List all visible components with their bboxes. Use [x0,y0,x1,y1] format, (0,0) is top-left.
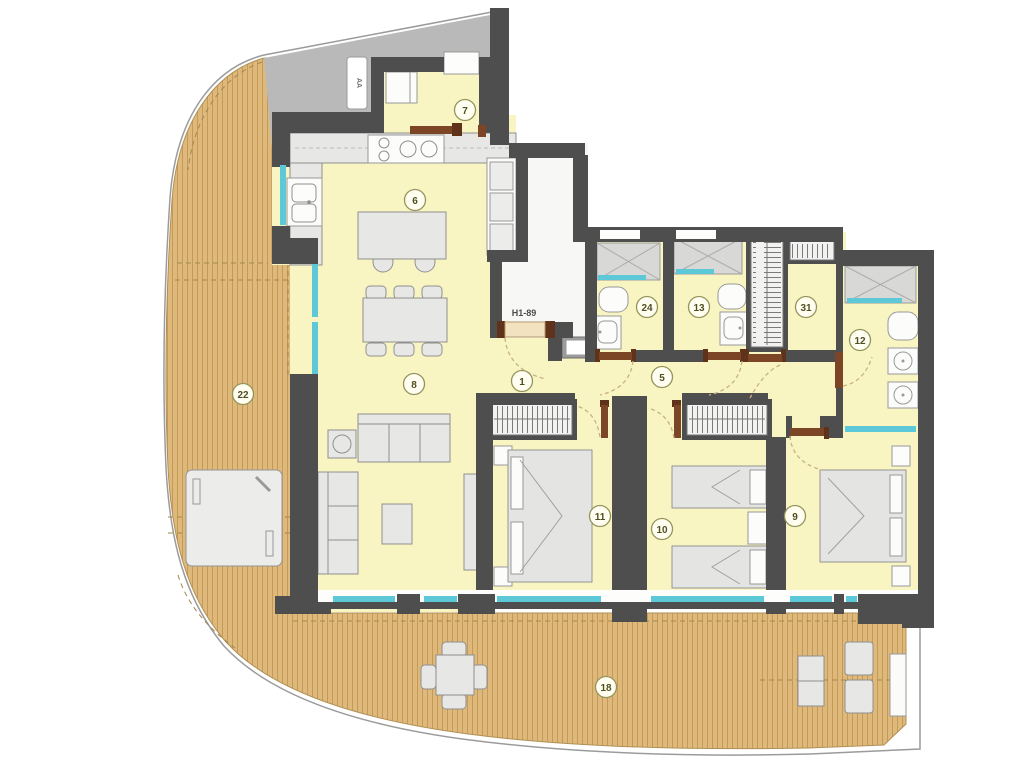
nightstand [892,446,910,466]
room-label-1: 1 [512,371,533,392]
room-label-9: 9 [785,506,806,527]
dining-chair [394,343,414,356]
room-label-12: 12 [850,330,871,351]
svg-text:12: 12 [854,336,866,347]
daybed [186,470,282,566]
coffee-table [382,504,412,544]
room-label-31: 31 [796,297,817,318]
single-bed [672,466,770,508]
kitchen-sink [287,178,322,226]
room-label-18: 18 [596,677,617,698]
washbasin [888,382,918,408]
dining-chair [394,286,414,299]
single-bed [672,546,770,588]
svg-text:8: 8 [411,380,417,391]
wardrobe-bedroom-11 [487,399,577,440]
room-label-5: 5 [652,367,673,388]
dining-table [363,298,447,342]
toilet [599,287,628,312]
wardrobe-column [746,230,788,352]
sofa-vertical [318,472,358,574]
room-label-6: 6 [405,190,426,211]
svg-text:1: 1 [519,377,525,388]
svg-text:9: 9 [792,512,798,523]
svg-text:22: 22 [237,390,249,401]
unit-label: H1-89 [512,308,537,318]
nightstand [892,566,910,586]
svg-text:5: 5 [659,373,665,384]
dining-chair [422,286,442,299]
sideboard [464,474,478,570]
svg-text:24: 24 [641,303,653,314]
dining-chair [422,343,442,356]
elevator-label: AA [355,78,362,88]
room-label-22: 22 [233,384,254,405]
tall-cabinets [487,158,516,255]
side-table [328,430,356,458]
double-bed [820,470,906,562]
entry-recess [444,52,479,74]
room-label-10: 10 [652,519,673,540]
sofa-horizontal [358,414,450,462]
svg-text:11: 11 [595,512,606,523]
washbasin [888,348,918,374]
svg-text:13: 13 [693,303,705,314]
room-label-11: 11 [590,506,611,527]
svg-text:18: 18 [600,683,612,694]
room-label-8: 8 [404,374,425,395]
wardrobe-bedroom-10 [682,399,772,440]
washbasin [594,316,621,349]
elevator: AA [347,57,367,109]
dining-chair [366,286,386,299]
toilet [718,284,746,309]
svg-text:10: 10 [656,525,668,536]
washing-machine [386,72,417,103]
dining-area [363,286,447,356]
svg-text:6: 6 [412,196,418,207]
shower [674,238,742,274]
room-label-7: 7 [455,100,476,121]
washbasin [720,312,747,345]
shower [845,266,916,303]
dining-chair [366,343,386,356]
bathtub [888,312,918,340]
deck-planter [890,654,906,716]
svg-text:7: 7 [462,106,468,117]
bedroom-11 [494,446,592,586]
outdoor-table [436,655,474,695]
room-label-24: 24 [637,297,658,318]
double-bed [508,450,592,582]
svg-text:31: 31 [800,303,812,314]
floor-plan: AA [0,0,1024,768]
shower [597,243,660,280]
room-label-13: 13 [689,297,710,318]
